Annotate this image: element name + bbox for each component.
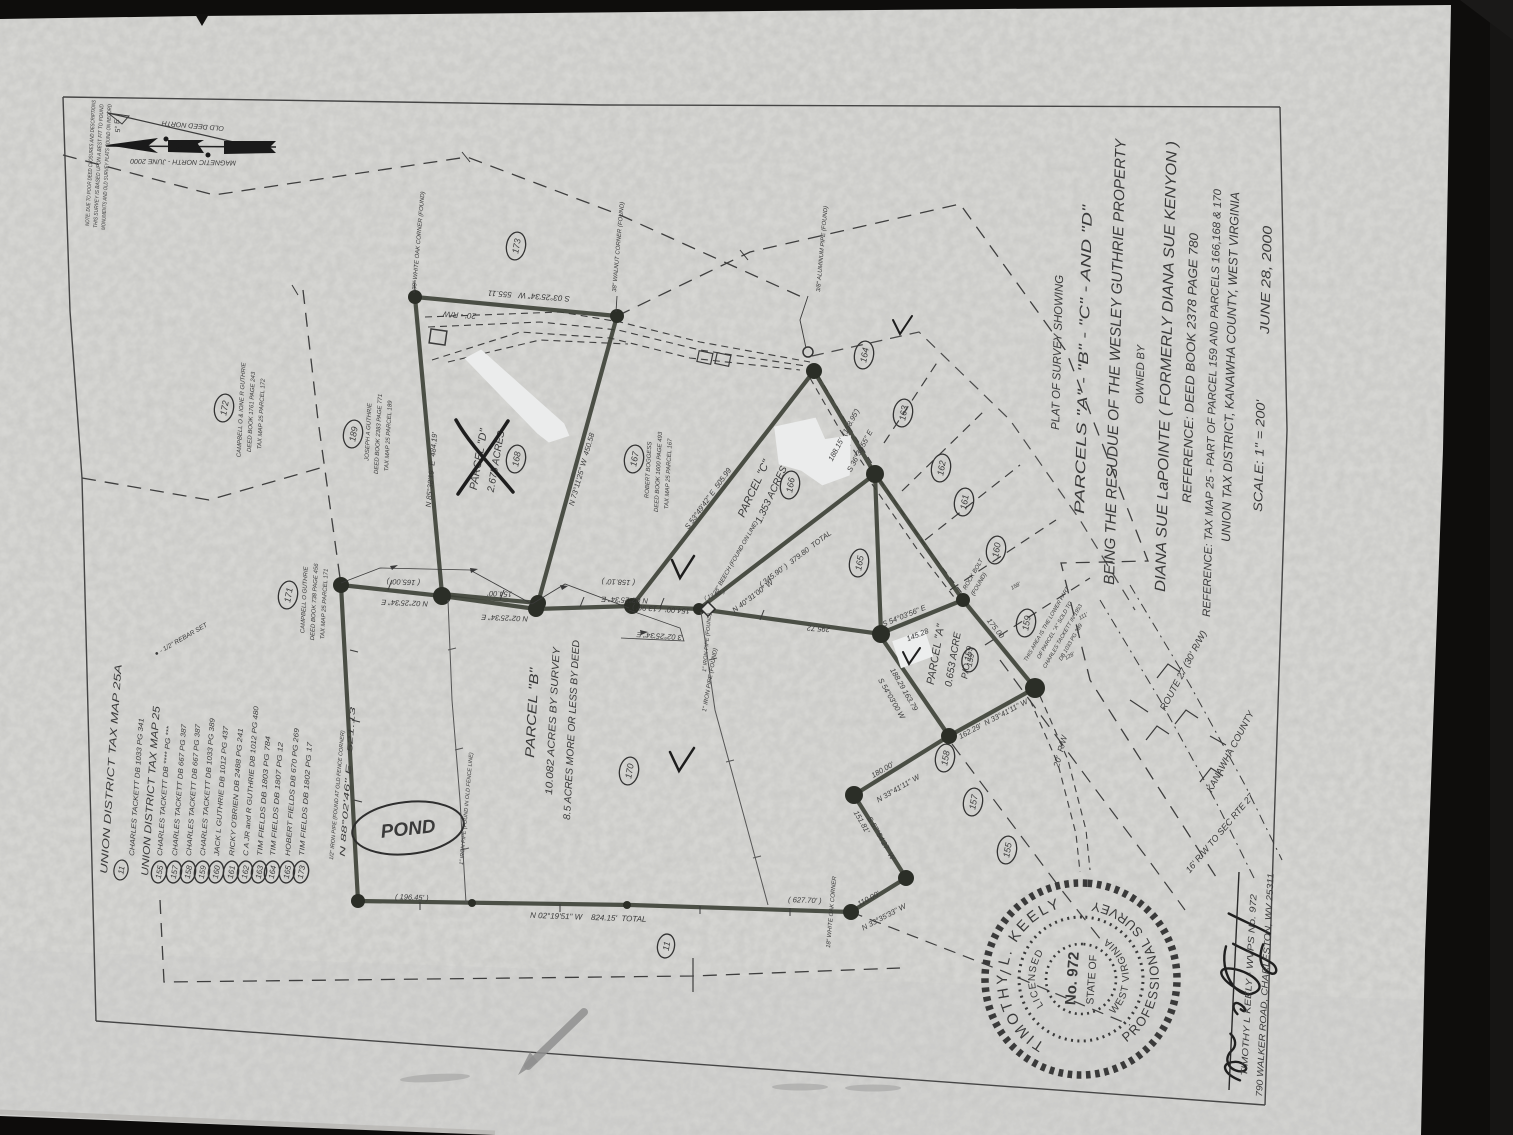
svg-text:11: 11: [661, 941, 672, 952]
svg-text:( 165.00' ): ( 165.00' ): [386, 577, 420, 587]
svg-text:154.00': 154.00': [487, 589, 512, 599]
svg-text:( 158.10' ): ( 158.10' ): [601, 577, 635, 587]
svg-text:295.72: 295.72: [806, 623, 831, 634]
svg-text:( 196.45' ): ( 196.45' ): [395, 892, 429, 902]
svg-text:11: 11: [116, 865, 126, 875]
svg-text:OWNED BY: OWNED BY: [1134, 344, 1148, 404]
svg-text:SCALE: 1" = 200': SCALE: 1" = 200': [1251, 399, 1268, 512]
svg-text:JUNE 28, 2000: JUNE 28, 2000: [1257, 225, 1275, 336]
svg-text:( 627.70' ): ( 627.70' ): [788, 895, 822, 905]
svg-text:N 02°25'34" E: N 02°25'34" E: [380, 598, 428, 609]
svg-text:N 02°25'34" E: N 02°25'34" E: [480, 613, 528, 624]
svg-text:5° E: 5° E: [113, 119, 122, 133]
